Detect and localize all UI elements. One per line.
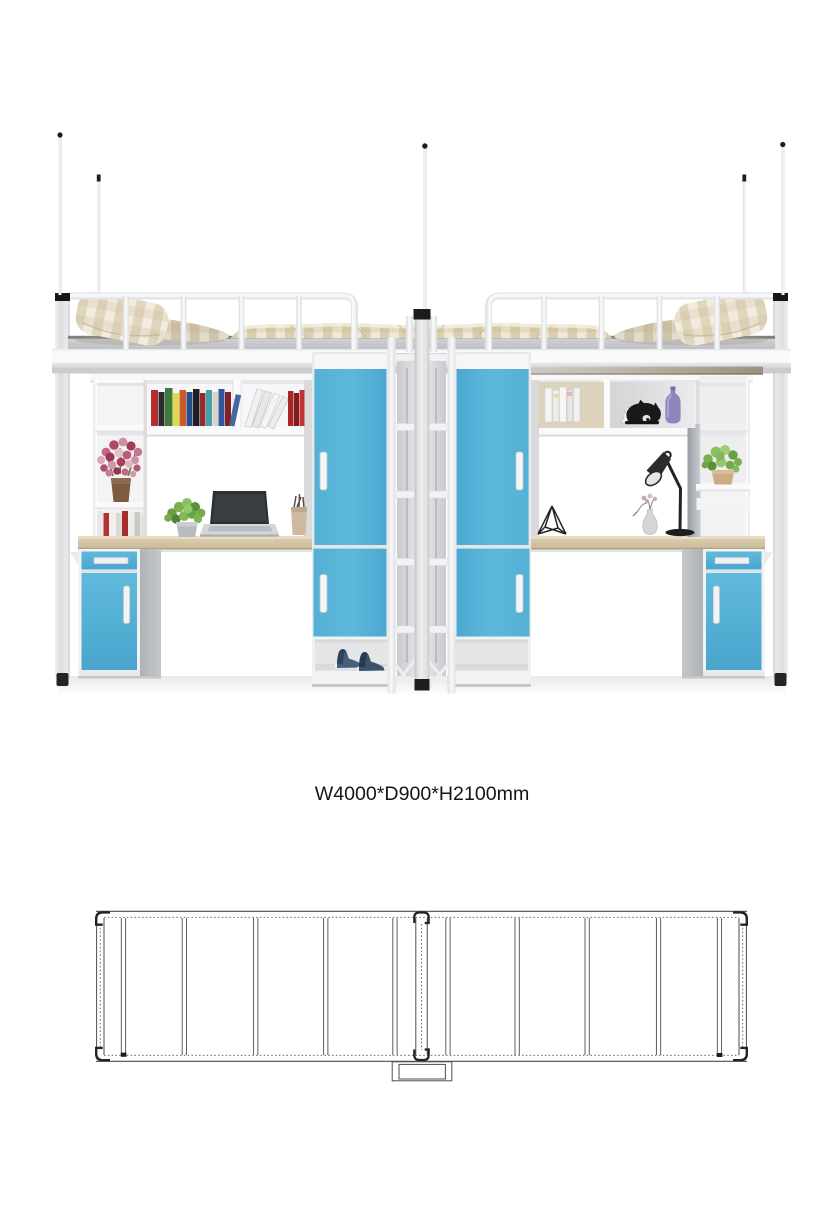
svg-text:W4000*D900*H2100mm: W4000*D900*H2100mm [315, 783, 530, 805]
